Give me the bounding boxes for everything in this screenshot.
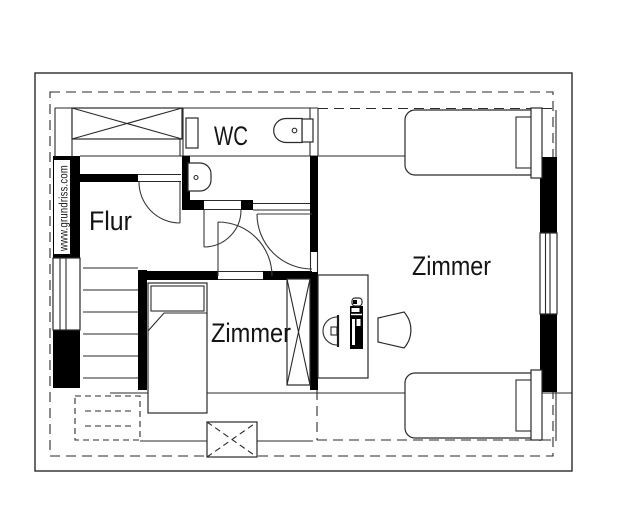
door-openings xyxy=(138,175,318,280)
large-room-door-jamb xyxy=(253,204,310,211)
doors xyxy=(139,182,312,276)
room-label-zimmer-small: Zimmer xyxy=(211,318,291,348)
small-room-door-jamb xyxy=(218,272,263,280)
wc-door-jamb xyxy=(204,201,241,210)
washbasin-symbol xyxy=(188,163,211,191)
stairs xyxy=(75,268,140,440)
wall-center-upper xyxy=(310,156,318,252)
chimney-box xyxy=(207,422,257,457)
room-label-zimmer-large: Zimmer xyxy=(412,251,491,281)
wall-corridor-south-left xyxy=(147,271,218,280)
watermark-text: www.grundriss.com xyxy=(59,165,71,252)
small-room-door-arc xyxy=(218,222,272,276)
window-right xyxy=(540,233,557,314)
large-room-door-arc xyxy=(257,214,312,269)
bed-top xyxy=(405,108,542,178)
office-chair-symbol xyxy=(378,312,411,348)
storage-door-jamb xyxy=(138,175,181,182)
wall-stair-east xyxy=(138,270,147,390)
pc-tower-symbol xyxy=(350,306,363,349)
toilet-symbol xyxy=(274,119,313,143)
wall-flur-north xyxy=(70,174,138,182)
bed-bottom xyxy=(405,370,542,440)
floor-plan-canvas: www.grundriss.com WC Flur Zimmer Zimmer xyxy=(0,0,640,522)
wall-center-lower xyxy=(310,272,318,390)
mouse-symbol xyxy=(352,298,362,306)
watermark: www.grundriss.com xyxy=(54,160,71,254)
stair-treads xyxy=(83,268,138,378)
wc-shaft xyxy=(186,118,198,148)
storage-door-arc xyxy=(139,182,180,223)
wall-left-lower xyxy=(53,330,80,388)
floor-plan-page: www.grundriss.com WC Flur Zimmer Zimmer xyxy=(0,0,640,522)
stair-lower-dashed-treads xyxy=(85,411,133,426)
wall-wc-south-left xyxy=(182,200,204,210)
room-label-wc: WC xyxy=(214,121,248,151)
left-wall-upper-outline xyxy=(55,108,72,156)
wall-wc-south-right xyxy=(241,200,253,210)
bed-small-room xyxy=(148,283,207,413)
room-label-flur: Flur xyxy=(89,206,132,236)
wardrobe-hall xyxy=(72,108,182,139)
wc-door-arc xyxy=(204,210,241,247)
stair-lower-dashed-box xyxy=(75,396,140,440)
